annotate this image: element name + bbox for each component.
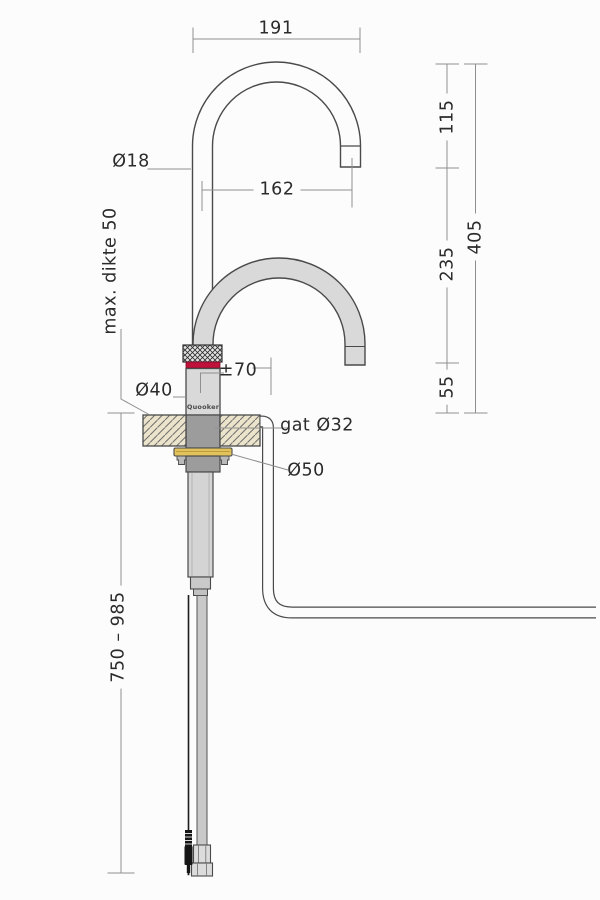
red-indicator-band	[186, 362, 220, 368]
supply-hose	[261, 422, 597, 613]
knurled-ring	[183, 345, 222, 362]
dimension-label-dia18: Ø18	[112, 153, 150, 171]
tap-shank	[186, 415, 220, 448]
fixing-bolt-left	[177, 456, 186, 465]
faucet-technical-drawing	[0, 0, 600, 900]
faucet	[143, 62, 597, 876]
dimension-label-162: 162	[254, 181, 301, 199]
flexible-hose	[197, 596, 207, 846]
dimension-label-gat32: gat Ø32	[280, 417, 354, 435]
hose-hex-nut	[192, 863, 213, 876]
dimension-label-405: 405	[467, 214, 485, 261]
dimension-label-pm70: ±70	[219, 362, 257, 380]
dimension-label-191: 191	[259, 20, 294, 38]
fixing-nut	[186, 456, 220, 472]
dimension-label-750-985: 750 – 985	[110, 585, 128, 688]
leader-dia50	[231, 454, 288, 470]
hose-fitting	[194, 845, 211, 863]
brand-logo-text: Quooker	[187, 404, 219, 411]
brass-washer	[174, 448, 232, 456]
fixing-bolt-right	[220, 456, 229, 465]
dimension-label-dia50: Ø50	[287, 462, 325, 480]
cylinder-collar	[191, 577, 211, 589]
worktop-left	[143, 415, 186, 446]
dimension-label-235: 235	[439, 241, 457, 288]
dimension-label-dia40: Ø40	[135, 382, 173, 400]
dimension-label-115: 115	[439, 94, 457, 141]
dimension-lines	[108, 28, 488, 874]
worktop-right	[220, 415, 260, 446]
dimension-label-55: 55	[439, 369, 457, 404]
electrical-cable	[185, 595, 193, 875]
dimension-label-max-dikte: max. dikte 50	[102, 207, 120, 334]
leader-max-dikte	[121, 329, 149, 415]
collar-taper	[194, 589, 208, 596]
technical-drawing-canvas: 191 162 115 235 55 405 Ø18 max. dikte 50…	[0, 0, 600, 900]
